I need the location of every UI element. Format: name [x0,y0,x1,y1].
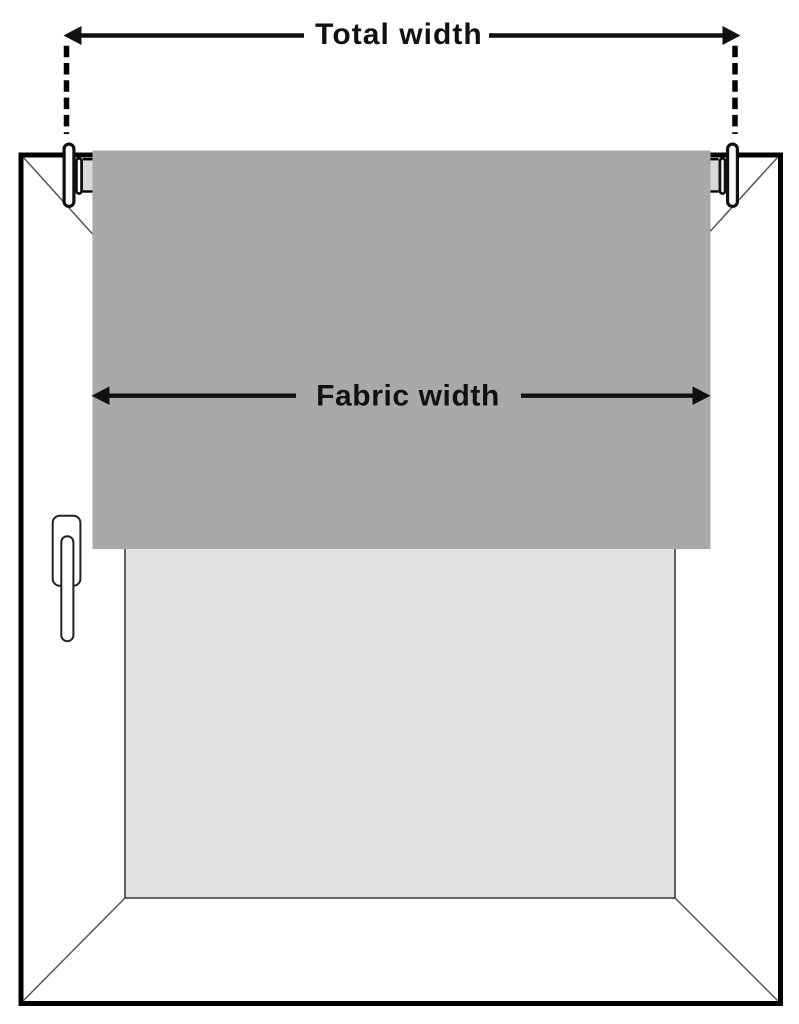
svg-text:Total width: Total width [315,18,483,51]
svg-text:Fabric width: Fabric width [316,380,500,413]
